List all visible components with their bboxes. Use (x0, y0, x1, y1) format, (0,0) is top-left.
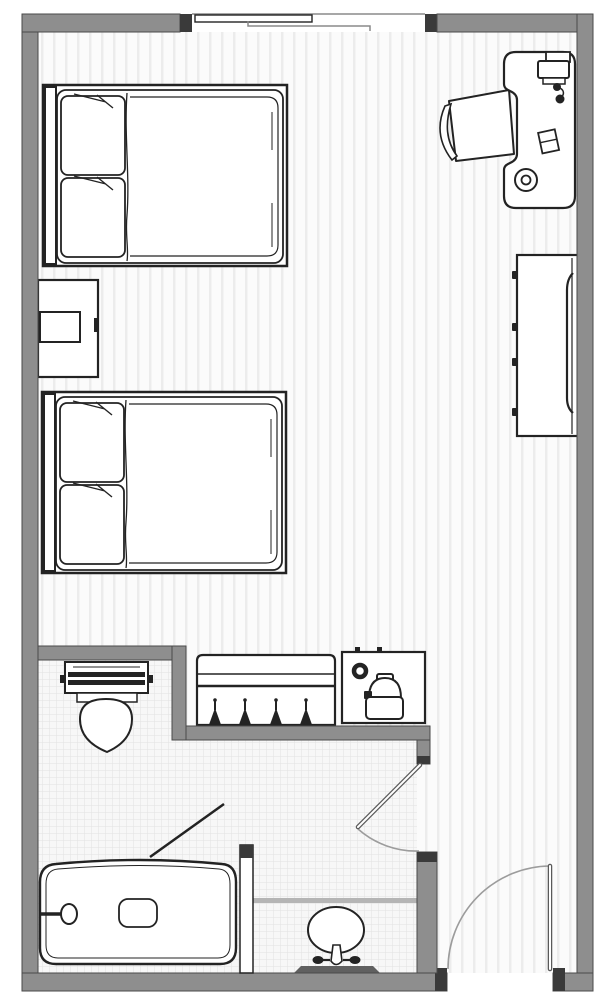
nightstand-lamp (40, 312, 80, 342)
desk-chair (440, 90, 514, 161)
closet (197, 655, 335, 726)
bathroom-top-wall (38, 646, 172, 660)
coffee-cup (354, 665, 366, 677)
vanity-counter-edge (253, 898, 417, 903)
entry-door-jamb (553, 968, 565, 991)
bathroom-door-jamb (417, 852, 437, 862)
sink-faucet (331, 945, 342, 965)
window-jamb (180, 14, 192, 32)
sliding-window (192, 14, 425, 31)
window-jamb (425, 14, 437, 32)
coffee-station (342, 647, 425, 723)
bathroom-step-wall (172, 646, 186, 740)
window-panel (195, 15, 312, 22)
left-wall (22, 14, 38, 991)
desk-cup (515, 169, 537, 191)
bathroom-door-jamb (417, 756, 430, 764)
tub-drain (119, 899, 157, 927)
bathtub (40, 860, 236, 964)
cabinet-hinge (355, 647, 360, 653)
chair-seat (449, 90, 514, 161)
bed-2 (42, 392, 286, 573)
tank-bolt (148, 675, 153, 683)
floor-plan (0, 0, 609, 1000)
corridor-wall (417, 852, 437, 973)
nightstand (38, 280, 99, 377)
tub-faucet-knob (61, 904, 77, 924)
top-wall-right (437, 14, 593, 32)
tub-partition-cap (240, 845, 253, 858)
desk-notepad (538, 129, 559, 153)
sink-handle (313, 956, 324, 964)
floor-plan-page (0, 0, 609, 1000)
cabinet-hinge (377, 647, 382, 653)
bottom-wall-left (22, 973, 447, 991)
dresser (512, 255, 578, 436)
tub-partition-wall (240, 845, 253, 973)
bathroom-mid-wall (186, 726, 430, 740)
right-wall (577, 14, 593, 991)
top-wall-left (22, 14, 180, 32)
tank-bolt (60, 675, 65, 683)
bed-1 (43, 85, 287, 266)
sink-handle (350, 956, 361, 964)
nightstand-knob (94, 318, 99, 332)
